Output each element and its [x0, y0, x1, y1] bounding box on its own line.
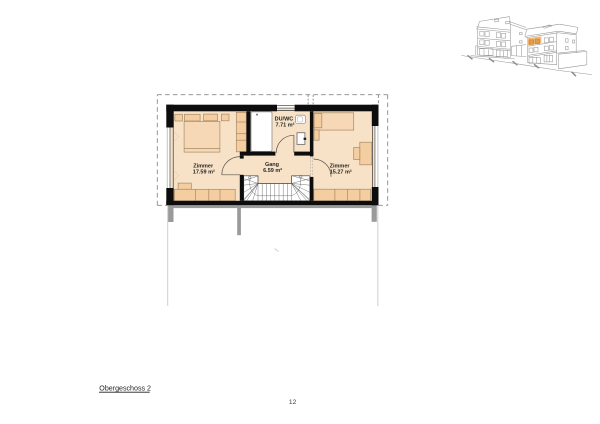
- svg-text:Obergeschoss 2: Obergeschoss 2: [99, 384, 151, 392]
- svg-text:17.59 m²: 17.59 m²: [193, 169, 215, 176]
- svg-text:7.71 m²: 7.71 m²: [276, 121, 295, 128]
- svg-text:15.27 m²: 15.27 m²: [330, 168, 352, 175]
- svg-text:12: 12: [289, 399, 297, 406]
- svg-text:6.59 m²: 6.59 m²: [263, 167, 282, 174]
